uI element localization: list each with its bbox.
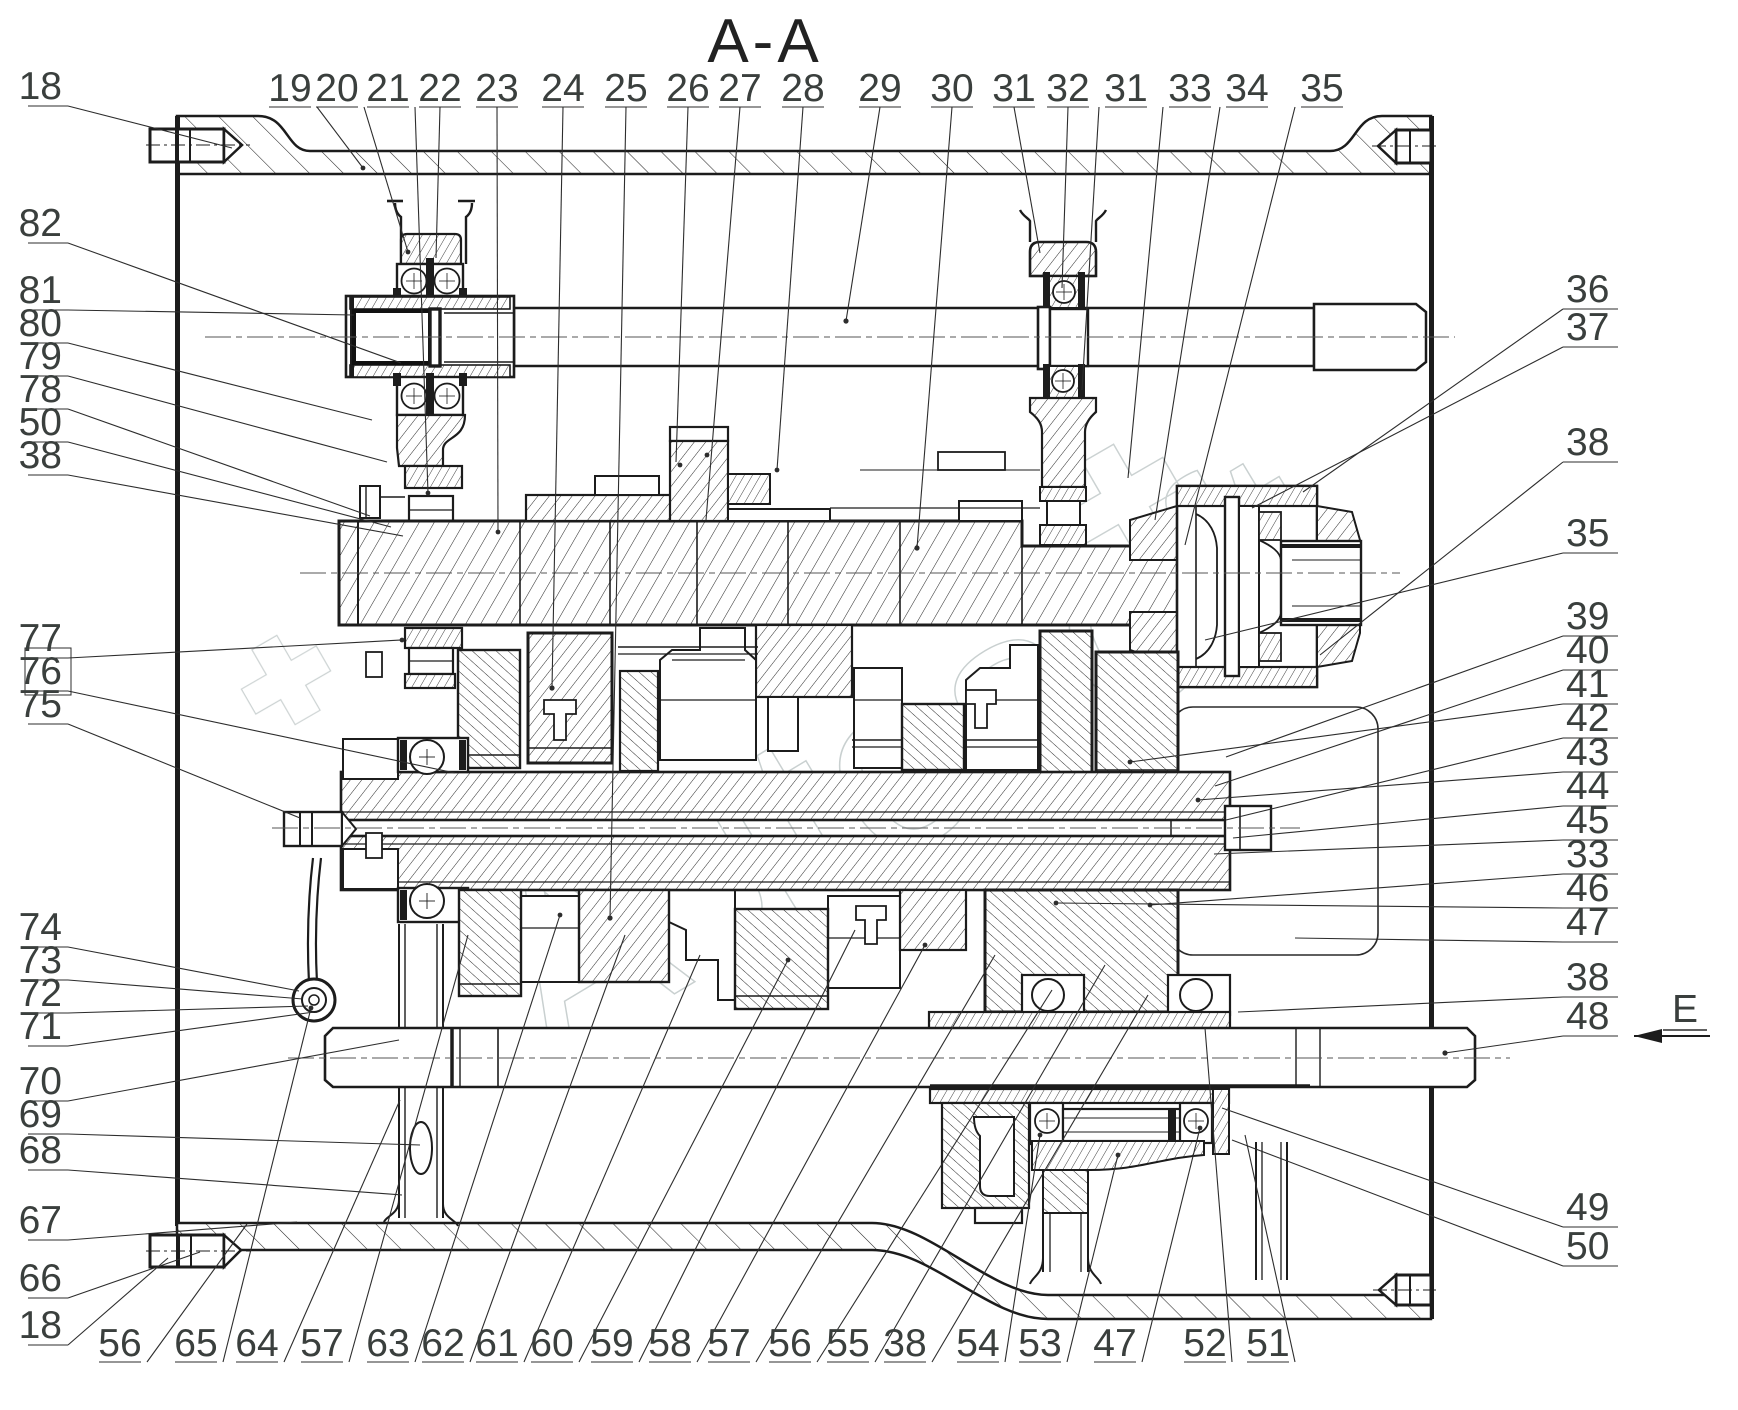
- svg-text:37: 37: [1566, 306, 1609, 349]
- svg-text:31: 31: [1104, 67, 1147, 110]
- svg-text:38: 38: [883, 1322, 926, 1365]
- svg-text:38: 38: [1566, 956, 1609, 999]
- svg-text:66: 66: [19, 1257, 62, 1300]
- svg-text:23: 23: [475, 67, 518, 110]
- svg-text:52: 52: [1183, 1322, 1226, 1365]
- svg-text:68: 68: [19, 1129, 62, 1172]
- svg-text:38: 38: [1566, 421, 1609, 464]
- svg-text:57: 57: [707, 1322, 750, 1365]
- svg-text:57: 57: [300, 1322, 343, 1365]
- svg-text:34: 34: [1225, 67, 1268, 110]
- svg-text:20: 20: [315, 67, 358, 110]
- svg-text:49: 49: [1566, 1186, 1609, 1229]
- svg-text:25: 25: [604, 67, 647, 110]
- svg-text:58: 58: [648, 1322, 691, 1365]
- svg-text:82: 82: [19, 202, 62, 245]
- svg-text:19: 19: [268, 67, 311, 110]
- svg-text:63: 63: [366, 1322, 409, 1365]
- svg-text:26: 26: [666, 67, 709, 110]
- svg-text:62: 62: [421, 1322, 464, 1365]
- svg-text:53: 53: [1018, 1322, 1061, 1365]
- svg-text:61: 61: [475, 1322, 518, 1365]
- svg-text:75: 75: [19, 683, 62, 726]
- svg-text:50: 50: [1566, 1225, 1609, 1268]
- svg-text:A-A: A-A: [707, 7, 822, 76]
- svg-text:51: 51: [1246, 1322, 1289, 1365]
- svg-text:56: 56: [98, 1322, 141, 1365]
- svg-text:18: 18: [19, 65, 62, 108]
- svg-text:33: 33: [1168, 67, 1211, 110]
- svg-text:24: 24: [541, 67, 584, 110]
- svg-text:59: 59: [590, 1322, 633, 1365]
- svg-text:55: 55: [826, 1322, 869, 1365]
- svg-text:18: 18: [19, 1304, 62, 1347]
- svg-text:65: 65: [174, 1322, 217, 1365]
- svg-text:67: 67: [19, 1199, 62, 1242]
- svg-text:32: 32: [1046, 67, 1089, 110]
- svg-text:60: 60: [530, 1322, 573, 1365]
- svg-text:22: 22: [418, 67, 461, 110]
- svg-text:56: 56: [768, 1322, 811, 1365]
- svg-text:48: 48: [1566, 995, 1609, 1038]
- svg-text:64: 64: [235, 1322, 278, 1365]
- svg-text:36: 36: [1566, 268, 1609, 311]
- svg-text:71: 71: [19, 1005, 62, 1048]
- svg-text:E: E: [1672, 988, 1698, 1031]
- svg-text:38: 38: [19, 434, 62, 477]
- svg-text:47: 47: [1566, 901, 1609, 944]
- svg-text:54: 54: [956, 1322, 999, 1365]
- svg-text:30: 30: [930, 67, 973, 110]
- svg-text:35: 35: [1566, 512, 1609, 555]
- svg-text:29: 29: [858, 67, 901, 110]
- svg-text:21: 21: [366, 67, 409, 110]
- svg-text:47: 47: [1093, 1322, 1136, 1365]
- svg-text:31: 31: [992, 67, 1035, 110]
- svg-text:35: 35: [1300, 67, 1343, 110]
